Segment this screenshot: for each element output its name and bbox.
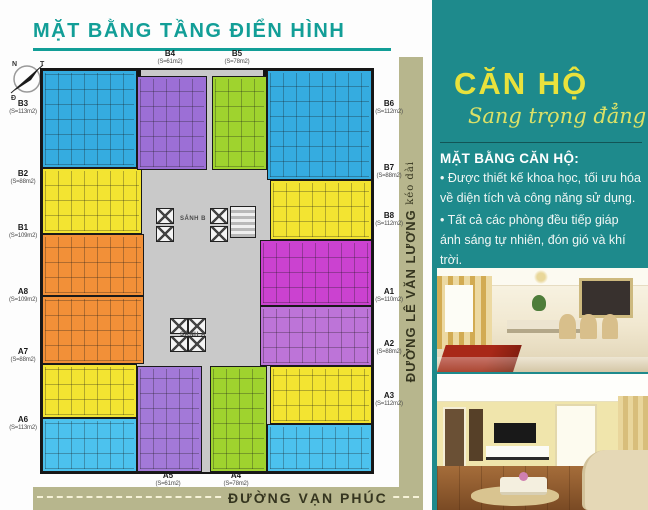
unit-label-A7: A7(S=88m2) [6,348,40,363]
unit-label-A1: A1(S=110m2) [372,288,406,303]
apartment-A8 [42,296,144,364]
apartment-B3 [42,70,137,168]
unit-label-A3: A3(S=112m2) [372,392,406,407]
apartment-B2 [42,168,142,234]
staircase-icon [230,206,256,238]
brochure-page: MẶT BẰNG TẦNG ĐIỂN HÌNH N T Đ B [0,0,648,510]
unit-label-A8: A8(S=109m2) [6,288,40,303]
window [445,285,472,333]
bottom-road-name: ĐƯỜNG VẠN PHÚC [223,490,393,506]
road-van-phuc: ĐƯỜNG VẠN PHÚC [33,487,423,510]
svg-text:T: T [40,61,45,68]
elevator-icon [188,336,206,352]
brand-title: CĂN HỘ [454,66,588,102]
apartment-A5 [137,366,202,472]
doorway [443,407,466,468]
dining-chair [602,314,619,339]
floor [437,357,648,372]
apartment-B4 [137,76,207,170]
feature-bullet: Tất cả các phòng đều tiếp giáp ánh sáng … [440,210,642,270]
promo-panel: CĂN HỘ Sang trọng đẳng cấp MẶT BẰNG CĂN … [432,0,648,510]
apartment-A1 [260,306,372,366]
unit-label-B6: B6(S=112m2) [372,100,406,115]
apartment-A2 [270,366,372,424]
ceiling [437,374,648,402]
building-footprint: SẢNH B SẢNH A [40,68,374,474]
svg-text:N: N [12,61,17,68]
unit-label-A5: A5(S=61m2) [151,472,185,487]
page-title: MẶT BẰNG TẦNG ĐIỂN HÌNH [33,20,391,51]
apartment-B8 [260,240,372,306]
apartment-B1 [42,234,144,296]
divider [440,142,642,143]
side-road-suffix: kéo dài [405,161,416,205]
elevator-icon [170,336,188,352]
television [494,423,536,443]
unit-label-A2: A2(S=88m2) [372,340,406,355]
doorway [469,409,484,461]
brand-tagline: Sang trọng đẳng cấp [468,104,648,128]
living-room-photo [437,374,648,510]
unit-label-B7: B7(S=88m2) [372,164,406,179]
apartment-A6 [42,418,137,472]
unit-label-B1: B1(S=109m2) [6,224,40,239]
apartment-B6 [267,70,372,180]
apartment-A4 [210,366,267,472]
elevator-icon [210,208,228,224]
apartment-B5 [212,76,267,170]
unit-label-A6: A6(S=113m2) [6,416,40,431]
apartment-B7 [270,180,372,240]
wall-art [579,278,634,317]
unit-label-B3: B3(S=113m2) [6,100,40,115]
dining-chair [559,314,576,339]
feature-bullets: Được thiết kế khoa học, tối ưu hóa về di… [440,168,642,272]
section-title: MẶT BẰNG CĂN HỘ: [440,151,579,166]
elevator-icon [210,226,228,242]
tv-cabinet [486,446,549,460]
unit-label-A4: A4(S=78m2) [219,472,253,487]
dining-chair [580,314,597,339]
unit-label-B2: B2(S=88m2) [6,170,40,185]
elevator-icon [156,208,174,224]
floor-plan: MẶT BẰNG TẦNG ĐIỂN HÌNH N T Đ B [0,0,432,510]
lobby-b-label: SẢNH B [180,216,206,222]
unit-label-B8: B8(S=112m2) [372,212,406,227]
flower-vase [532,295,546,311]
sofa [582,450,648,510]
unit-label-B4: B4(S=61m2) [153,50,187,65]
lobby-a-label: SẢNH A [180,332,206,338]
unit-label-B5: B5(S=78m2) [220,50,254,65]
elevator-icon [156,226,174,242]
apartment-A7 [42,364,137,418]
feature-bullet: Được thiết kế khoa học, tối ưu hóa về di… [440,168,642,208]
apartment-A3 [267,424,372,472]
dining-room-photo [437,268,648,372]
road-le-van-luong: ĐƯỜNG LÊ VĂN LƯƠNG kéo dài [399,57,423,487]
